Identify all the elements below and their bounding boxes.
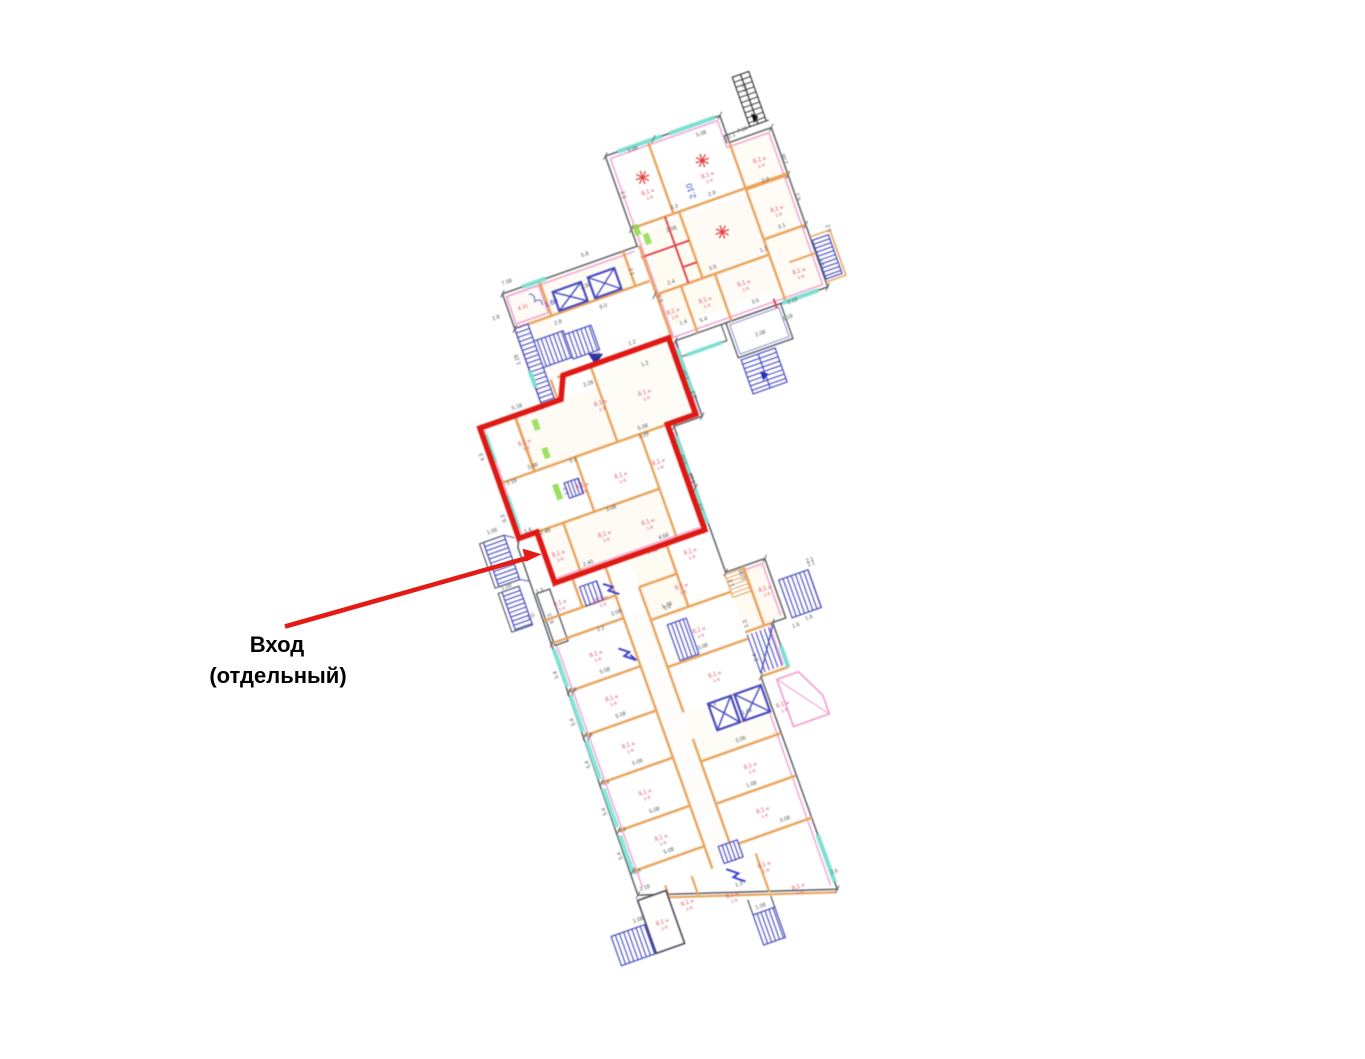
svg-text:(отдельный): (отдельный): [209, 663, 346, 688]
svg-text:Вход: Вход: [250, 632, 304, 657]
